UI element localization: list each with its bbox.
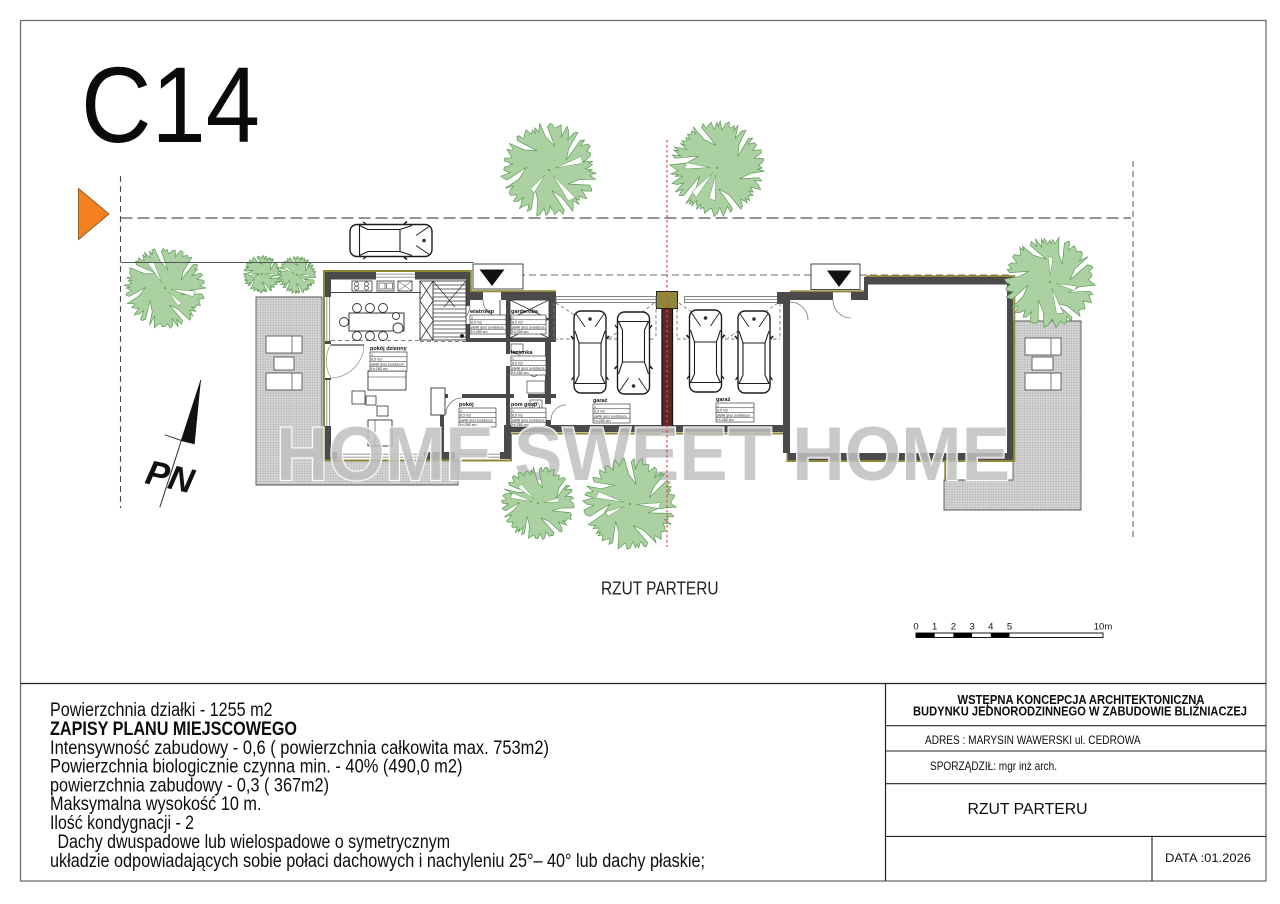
svg-text:garderoba: garderoba: [511, 309, 539, 315]
svg-text:łazienka: łazienka: [511, 350, 533, 356]
svg-text:płytki gres poddasze: płytki gres poddasze: [512, 325, 545, 329]
svg-text:1: 1: [932, 622, 937, 633]
svg-text:1: 1: [512, 316, 514, 320]
svg-text:8,5 m2: 8,5 m2: [512, 321, 523, 325]
svg-text:H=280 cm: H=280 cm: [471, 330, 487, 334]
svg-text:pom gosp: pom gosp: [511, 402, 538, 408]
svg-text:H=280 cm: H=280 cm: [371, 367, 387, 371]
svg-text:10m: 10m: [1094, 622, 1113, 633]
svg-text:8,5 m2: 8,5 m2: [471, 321, 482, 325]
svg-text:Ilość kondygnacji - 2: Ilość kondygnacji - 2: [50, 813, 194, 834]
svg-text:DATA :01.2026: DATA :01.2026: [1165, 851, 1251, 865]
svg-text:układzie odpowiadających sobie: układzie odpowiadających sobie połaci da…: [50, 851, 705, 872]
svg-text:płytki gres poddasze: płytki gres poddasze: [471, 325, 504, 329]
svg-text:garaż: garaż: [716, 397, 731, 403]
svg-text:C14: C14: [81, 44, 260, 165]
svg-text:Powierzchnia działki - 1255 m2: Powierzchnia działki - 1255 m2: [50, 700, 273, 721]
svg-text:płytki gres poddasze: płytki gres poddasze: [512, 366, 545, 370]
svg-text:wiatrołap: wiatrołap: [469, 309, 495, 315]
svg-text:1: 1: [717, 404, 719, 408]
svg-text:BUDYNKU JEDNORODZINNEGO W ZABU: BUDYNKU JEDNORODZINNEGO W ZABUDOWIE BLIŹ…: [913, 704, 1247, 719]
svg-text:płytki gres poddasze: płytki gres poddasze: [371, 362, 404, 366]
svg-text:RZUT PARTERU: RZUT PARTERU: [968, 801, 1088, 818]
svg-text:3: 3: [969, 622, 974, 633]
svg-text:1: 1: [371, 353, 373, 357]
svg-text:pokój dzienny: pokój dzienny: [370, 346, 408, 352]
svg-text:SPORZĄDZIŁ: mgr inż arch.: SPORZĄDZIŁ: mgr inż arch.: [930, 759, 1057, 773]
svg-text:1: 1: [471, 316, 473, 320]
svg-text:1: 1: [594, 405, 596, 409]
svg-text:0: 0: [913, 622, 918, 633]
svg-text:pokój: pokój: [459, 402, 474, 408]
svg-text:H=280 cm: H=280 cm: [512, 330, 528, 334]
svg-text:2: 2: [951, 622, 956, 633]
svg-text:ADRES : MARYSIN WAWERSKI ul. C: ADRES : MARYSIN WAWERSKI ul. CEDROWA: [925, 733, 1141, 747]
svg-text:Maksymalna wysokość 10 m.: Maksymalna wysokość 10 m.: [50, 794, 262, 815]
svg-text:5: 5: [1007, 622, 1012, 633]
svg-text:Powierzchnia biologicznie czyn: Powierzchnia biologicznie czynna min. - …: [50, 757, 463, 778]
svg-text:ZAPISY PLANU MIEJSCOWEGO: ZAPISY PLANU MIEJSCOWEGO: [50, 719, 297, 740]
svg-text:1: 1: [512, 357, 514, 361]
svg-text:Dachy dwuspadowe lub wielospad: Dachy dwuspadowe lub wielospadowe o syme…: [58, 832, 451, 853]
svg-text:8,5 m2: 8,5 m2: [371, 358, 382, 362]
svg-text:H=280 cm: H=280 cm: [512, 371, 528, 375]
svg-text:4: 4: [988, 622, 993, 633]
svg-text:garaż: garaż: [593, 398, 608, 404]
svg-text:RZUT PARTERU: RZUT PARTERU: [601, 579, 719, 599]
svg-text:8,5 m2: 8,5 m2: [512, 362, 523, 366]
